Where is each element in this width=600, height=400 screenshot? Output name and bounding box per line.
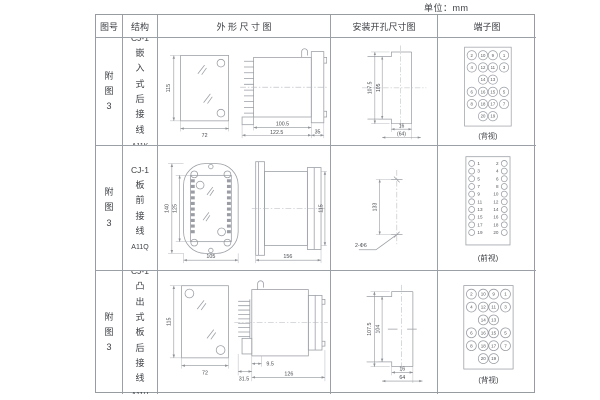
row2-install-v1: 133 xyxy=(372,203,378,212)
svg-text:15: 15 xyxy=(477,214,483,219)
row2-figure-number: 附图3 xyxy=(96,146,123,271)
svg-text:9: 9 xyxy=(492,291,495,296)
svg-text:12: 12 xyxy=(480,304,486,309)
row2-terminal-view: (前视) xyxy=(478,252,499,262)
svg-text:19: 19 xyxy=(477,230,483,235)
row3-terminal-cell: (背视) 2109141211314136161558181772019 xyxy=(438,271,536,394)
header-install: 安装开孔尺寸图 xyxy=(331,15,438,38)
svg-text:19: 19 xyxy=(491,356,497,361)
svg-text:11: 11 xyxy=(491,304,496,309)
row2-terminal-diagram: (前视) 1234567891011121314151617181920 xyxy=(440,149,534,268)
row1-dim-height: 115 xyxy=(166,83,172,91)
row1-structure: CJ-1 嵌入式后接线 A11K xyxy=(123,38,158,146)
row1-install-drawing: 107.5 105 16 (64) xyxy=(336,40,433,143)
svg-text:16: 16 xyxy=(493,214,499,219)
row1-install-v1: 107.5 xyxy=(367,81,373,94)
row2-structure: CJ-1 板前接线 A11Q xyxy=(123,146,158,271)
row2-install-drawing: 133 2-Φ6 xyxy=(334,151,434,265)
row1-dim-d2: 122.5 xyxy=(270,129,283,135)
svg-text:8: 8 xyxy=(470,343,473,348)
row2-model: CJ-1 xyxy=(131,165,149,175)
svg-text:18: 18 xyxy=(493,222,499,227)
row2-dim-width: 105 xyxy=(206,254,215,260)
row2-dim-height: 140 xyxy=(164,204,170,213)
svg-text:6: 6 xyxy=(496,176,499,181)
unit-label: 单位：mm xyxy=(424,1,469,14)
spec-table: 图号 结构 外 形 尺 寸 图 安装开孔尺寸图 端子图 附图3 CJ-1 嵌入式… xyxy=(95,14,535,393)
svg-text:6: 6 xyxy=(470,330,473,335)
svg-text:2: 2 xyxy=(471,52,474,57)
svg-text:20: 20 xyxy=(480,356,486,361)
svg-text:16: 16 xyxy=(481,89,486,94)
row1-dim-d1: 100.5 xyxy=(276,121,289,127)
svg-text:17: 17 xyxy=(491,343,497,348)
svg-text:8: 8 xyxy=(471,101,474,106)
svg-text:14: 14 xyxy=(481,77,486,82)
row2-outline-cell: 140 125 105 156 115 xyxy=(158,146,331,271)
row3-code: A11H xyxy=(132,392,149,394)
row1-terminal-diagram: (背视) 2109141211314136161558181772019 xyxy=(443,40,531,144)
row2-terminal-cell: (前视) 1234567891011121314151617181920 xyxy=(438,146,536,271)
row2-install-hole: 2-Φ6 xyxy=(355,243,367,249)
row1-outline-drawing: 115 72 100.5 122.5 35 xyxy=(161,42,327,142)
row2-code: A11Q xyxy=(131,244,148,251)
svg-text:18: 18 xyxy=(480,343,486,348)
svg-text:16: 16 xyxy=(480,330,486,335)
svg-text:9: 9 xyxy=(492,52,495,57)
svg-text:10: 10 xyxy=(481,52,486,57)
row1-terminal-view: (背视) xyxy=(478,131,497,140)
row3-install-v2: 104 xyxy=(375,324,381,333)
row1-install-b2: (64) xyxy=(397,132,406,138)
svg-text:14: 14 xyxy=(480,317,486,322)
svg-text:18: 18 xyxy=(481,101,486,106)
svg-text:17: 17 xyxy=(490,101,495,106)
row2-install-cell: 133 2-Φ6 xyxy=(331,146,438,271)
document-page: 单位：mm 图号 结构 外 形 尺 寸 图 安装开孔尺寸图 端子图 附图3 CJ… xyxy=(0,0,600,400)
svg-text:3: 3 xyxy=(477,168,480,173)
row2-fig-label: 附图3 xyxy=(104,185,115,231)
svg-text:20: 20 xyxy=(493,230,499,235)
row3-outline-drawing: 115 72 9.5 31.5 126 xyxy=(160,274,328,391)
svg-text:17: 17 xyxy=(477,222,483,227)
row1-structure-label: 嵌入式后接线 xyxy=(135,46,146,138)
row1-fig-label: 附图3 xyxy=(104,69,115,115)
header-outline: 外 形 尺 寸 图 xyxy=(158,15,331,38)
row2-dim-inner-height: 125 xyxy=(173,204,179,213)
svg-text:4: 4 xyxy=(471,64,474,69)
svg-text:7: 7 xyxy=(503,101,506,106)
svg-text:13: 13 xyxy=(477,207,483,212)
svg-text:15: 15 xyxy=(491,330,497,335)
svg-text:7: 7 xyxy=(477,184,480,189)
svg-text:14: 14 xyxy=(493,207,499,212)
svg-text:20: 20 xyxy=(481,113,486,118)
svg-text:3: 3 xyxy=(503,64,506,69)
svg-text:4: 4 xyxy=(470,304,473,309)
svg-text:5: 5 xyxy=(477,176,480,181)
svg-text:10: 10 xyxy=(493,191,499,196)
svg-text:15: 15 xyxy=(490,89,495,94)
row1-dim-d3: 35 xyxy=(315,129,321,135)
row2-structure-label: 板前接线 xyxy=(135,178,146,239)
row2-dim-side-height: 115 xyxy=(318,204,324,213)
row3-fig-label: 附图3 xyxy=(104,310,115,356)
svg-text:5: 5 xyxy=(504,330,507,335)
row3-dim-d3: 126 xyxy=(284,371,293,377)
row1-install-cell: 107.5 105 16 (64) xyxy=(331,38,438,146)
svg-text:11: 11 xyxy=(491,64,496,69)
svg-text:12: 12 xyxy=(481,64,486,69)
row3-install-b1: 16 xyxy=(399,366,405,372)
svg-text:2: 2 xyxy=(470,291,473,296)
row2-dim-length: 156 xyxy=(283,254,292,260)
row3-dim-d2: 31.5 xyxy=(239,376,249,382)
svg-text:11: 11 xyxy=(477,199,482,204)
header-fig-no: 图号 xyxy=(96,15,123,38)
svg-text:13: 13 xyxy=(490,77,495,82)
row3-structure: CJ-1 凸出式板后接线 A11H xyxy=(123,271,158,394)
row3-install-cell: 107.5 104 16 64 xyxy=(331,271,438,394)
row3-terminal-view: (背视) xyxy=(478,374,499,384)
row1-dim-width: 72 xyxy=(202,133,208,139)
header-structure: 结构 xyxy=(123,15,158,38)
row3-structure-label: 凸出式板后接线 xyxy=(135,279,146,386)
row3-install-v1: 107.5 xyxy=(367,322,373,335)
svg-text:7: 7 xyxy=(504,343,507,348)
svg-text:1: 1 xyxy=(477,161,480,166)
svg-text:13: 13 xyxy=(491,317,497,322)
row1-figure-number: 附图3 xyxy=(96,38,123,146)
row1-terminal-cell: (背视) 2109141211314136161558181772019 xyxy=(438,38,536,146)
row1-model: CJ-1 xyxy=(131,38,149,43)
row1-install-v2: 105 xyxy=(375,83,381,92)
svg-text:2: 2 xyxy=(496,161,499,166)
row1-install-b1: 16 xyxy=(398,123,404,129)
row3-terminal-diagram: (背视) 2109141211314136161558181772019 xyxy=(441,278,534,388)
svg-text:9: 9 xyxy=(477,191,480,196)
row3-install-b2: 64 xyxy=(399,375,405,381)
row3-outline-cell: 115 72 9.5 31.5 126 xyxy=(158,271,331,394)
svg-text:10: 10 xyxy=(480,291,486,296)
svg-text:8: 8 xyxy=(496,184,499,189)
row1-outline-cell: 115 72 100.5 122.5 35 xyxy=(158,38,331,146)
svg-text:1: 1 xyxy=(503,52,506,57)
svg-text:6: 6 xyxy=(471,89,474,94)
row2-outline-drawing: 140 125 105 156 115 xyxy=(160,150,328,267)
row3-dim-width: 72 xyxy=(202,370,208,376)
svg-text:12: 12 xyxy=(493,199,499,204)
svg-text:4: 4 xyxy=(496,168,499,173)
row3-dim-d1: 9.5 xyxy=(266,362,273,368)
svg-text:1: 1 xyxy=(504,291,507,296)
svg-text:3: 3 xyxy=(504,304,507,309)
svg-text:19: 19 xyxy=(490,113,495,118)
svg-text:5: 5 xyxy=(503,89,506,94)
row3-install-drawing: 107.5 104 16 64 xyxy=(334,279,435,387)
row3-figure-number: 附图3 xyxy=(96,271,123,394)
header-terminal: 端子图 xyxy=(438,15,536,38)
row3-model: CJ-1 xyxy=(131,271,149,276)
row3-dim-height: 115 xyxy=(166,317,172,326)
